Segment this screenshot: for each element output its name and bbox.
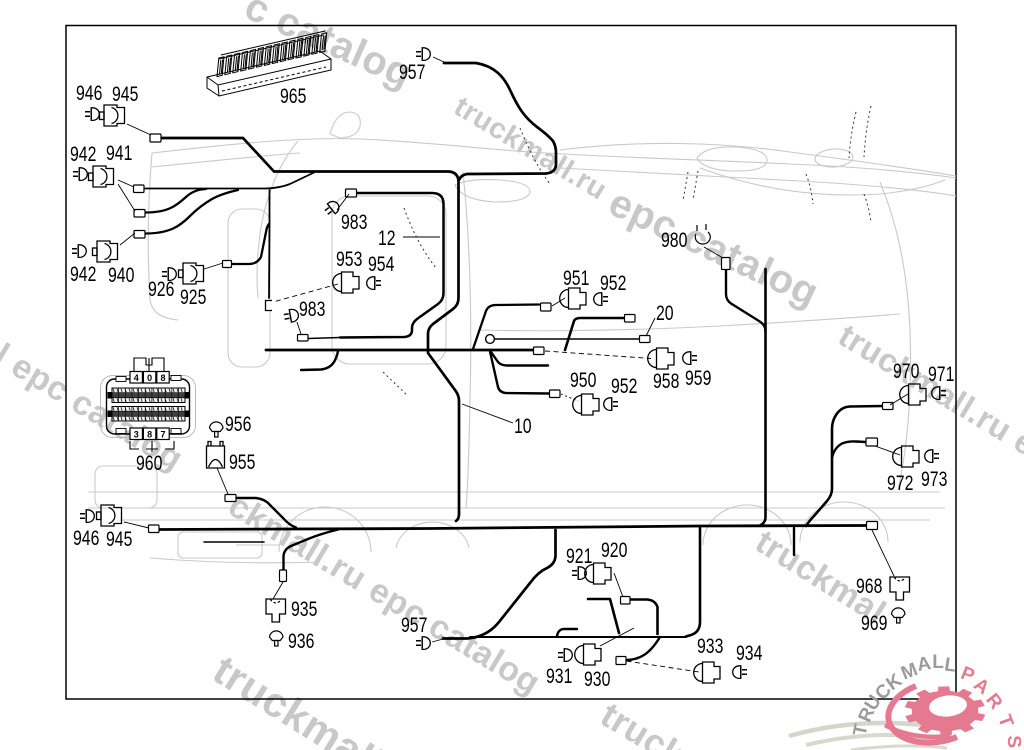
svg-text:8: 8 [160, 373, 165, 383]
svg-text:983: 983 [341, 211, 367, 234]
svg-text:941: 941 [106, 142, 132, 165]
svg-text:983: 983 [299, 298, 325, 321]
svg-text:980: 980 [661, 229, 687, 252]
svg-text:945: 945 [106, 528, 132, 551]
svg-text:10: 10 [514, 415, 532, 438]
svg-text:973: 973 [921, 468, 947, 491]
svg-text:921: 921 [566, 545, 592, 568]
svg-text:0: 0 [147, 373, 152, 383]
svg-text:S: S [1003, 735, 1024, 749]
svg-text:959: 959 [685, 367, 711, 390]
svg-text:971: 971 [928, 363, 954, 386]
svg-text:7: 7 [160, 429, 165, 439]
svg-text:957: 957 [399, 61, 425, 84]
svg-text:972: 972 [887, 472, 913, 495]
svg-text:942: 942 [70, 263, 96, 286]
svg-text:950: 950 [570, 369, 596, 392]
svg-text:936: 936 [288, 630, 314, 653]
svg-text:956: 956 [225, 413, 251, 436]
svg-text:L: L [932, 652, 944, 673]
svg-text:920: 920 [601, 539, 627, 562]
svg-text:958: 958 [653, 370, 679, 393]
svg-text:957: 957 [401, 614, 427, 637]
svg-text:925: 925 [180, 286, 206, 309]
svg-text:960: 960 [136, 452, 162, 475]
svg-text:12: 12 [378, 227, 396, 250]
svg-text:934: 934 [736, 642, 763, 665]
svg-text:970: 970 [893, 360, 919, 383]
svg-text:954: 954 [368, 253, 395, 276]
svg-text:931: 931 [546, 665, 572, 688]
svg-text:969: 969 [861, 612, 887, 635]
svg-text:942: 942 [70, 143, 96, 166]
svg-text:20: 20 [656, 302, 674, 325]
svg-text:953: 953 [336, 248, 362, 271]
svg-text:940: 940 [108, 264, 134, 287]
svg-text:946: 946 [73, 527, 99, 550]
svg-text:926: 926 [148, 278, 174, 301]
svg-text:4: 4 [134, 373, 139, 383]
svg-text:955: 955 [229, 451, 255, 474]
svg-text:951: 951 [563, 267, 589, 290]
svg-text:952: 952 [611, 375, 637, 398]
svg-text:930: 930 [584, 668, 610, 691]
svg-text:968: 968 [856, 575, 882, 598]
svg-text:933: 933 [697, 635, 723, 658]
svg-text:946: 946 [76, 82, 102, 105]
svg-text:965: 965 [280, 85, 306, 108]
svg-text:8: 8 [147, 429, 152, 439]
svg-text:945: 945 [112, 83, 138, 106]
svg-text:952: 952 [600, 272, 626, 295]
svg-text:935: 935 [291, 598, 317, 621]
svg-text:3: 3 [134, 429, 139, 439]
